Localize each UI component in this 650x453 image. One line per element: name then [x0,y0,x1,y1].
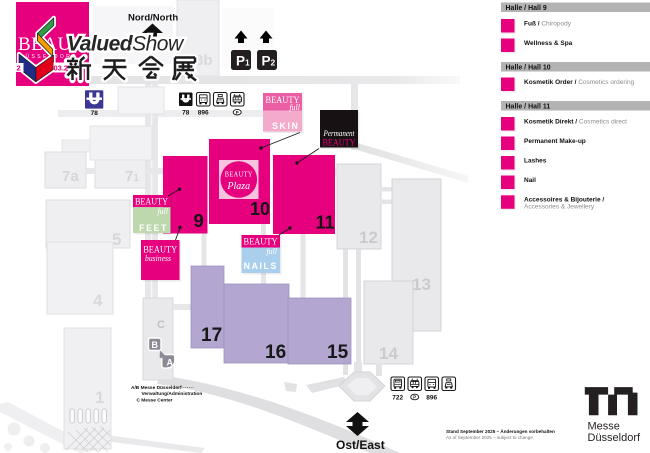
svg-text:BEAUTY: BEAUTY [225,171,253,179]
svg-text:Halle / Hall 9: Halle / Hall 9 [506,5,547,12]
svg-text:A/B Messe Düsseldorf: A/B Messe Düsseldorf [131,385,182,391]
svg-text:Fuß / Chiropody: Fuß / Chiropody [524,21,572,28]
svg-text:As of September 2025 – subject: As of September 2025 – subject to change [446,435,533,440]
svg-text:722: 722 [392,395,403,402]
svg-text:14: 14 [379,344,398,363]
svg-text:A: A [166,358,173,368]
svg-text:Permanent Make-up: Permanent Make-up [524,138,586,145]
svg-text:78: 78 [182,110,190,117]
svg-text:896: 896 [198,110,209,117]
svg-text:full: full [266,247,277,256]
svg-text:NAILS: NAILS [244,261,278,271]
svg-text:Permanent: Permanent [323,129,356,138]
svg-text:Accessoires & Bijouterie /: Accessoires & Bijouterie / [524,197,604,204]
svg-text:9: 9 [194,210,204,231]
svg-text:13: 13 [412,275,431,294]
svg-text:12: 12 [359,228,378,247]
svg-text:Accessories & Jewellery: Accessories & Jewellery [524,204,595,211]
svg-text:11: 11 [316,213,335,233]
svg-text:full: full [289,103,300,112]
svg-text:B: B [151,340,158,350]
svg-text:FEET: FEET [139,223,168,233]
svg-text:03.2: 03.2 [54,64,69,73]
svg-text:7a: 7a [62,168,79,185]
svg-text:C: C [157,319,165,331]
svg-text:16: 16 [265,342,286,363]
svg-text:Verwaltung/Administration: Verwaltung/Administration [142,391,203,397]
svg-text:1: 1 [95,388,104,407]
svg-text:Stand September 2025 – Änderun: Stand September 2025 – Änderungen vorbeh… [446,428,555,434]
svg-text:business: business [145,253,172,263]
svg-text:2: 2 [17,64,21,73]
svg-text:17: 17 [201,325,222,346]
svg-text:15: 15 [327,342,349,363]
svg-text:Halle / Hall 10: Halle / Hall 10 [506,64,551,71]
svg-text:Nail: Nail [524,177,536,184]
svg-text:4: 4 [93,291,103,310]
svg-text:Ost/East: Ost/East [336,438,385,452]
svg-text:Messe: Messe [588,421,620,433]
svg-text:Kosmetik Order / Cosmetics ord: Kosmetik Order / Cosmetics ordering [524,79,635,86]
svg-text:896: 896 [426,395,437,402]
svg-text:Halle / Hall 11: Halle / Hall 11 [506,103,551,110]
svg-text:C Messe Center: C Messe Center [137,397,173,403]
svg-text:10: 10 [250,199,270,219]
svg-text:SKIN: SKIN [272,121,299,131]
svg-text:full: full [157,207,168,216]
svg-text:BEAUTY: BEAUTY [135,198,168,208]
svg-text:78: 78 [91,110,99,117]
svg-text:ValuedShow: ValuedShow [67,33,185,56]
svg-text:BEAUTY: BEAUTY [244,238,278,248]
svg-text:Düsseldorf: Düsseldorf [588,432,642,444]
svg-text:Wellness & Spa: Wellness & Spa [524,40,573,47]
svg-text:Lashes: Lashes [524,158,547,165]
svg-text:BEAUTY: BEAUTY [323,139,356,149]
svg-text:Nord/North: Nord/North [128,13,178,24]
svg-text:Plaza: Plaza [226,181,250,192]
svg-text:Kosmetik Direkt / Cosmetics di: Kosmetik Direkt / Cosmetics direct [524,119,627,126]
